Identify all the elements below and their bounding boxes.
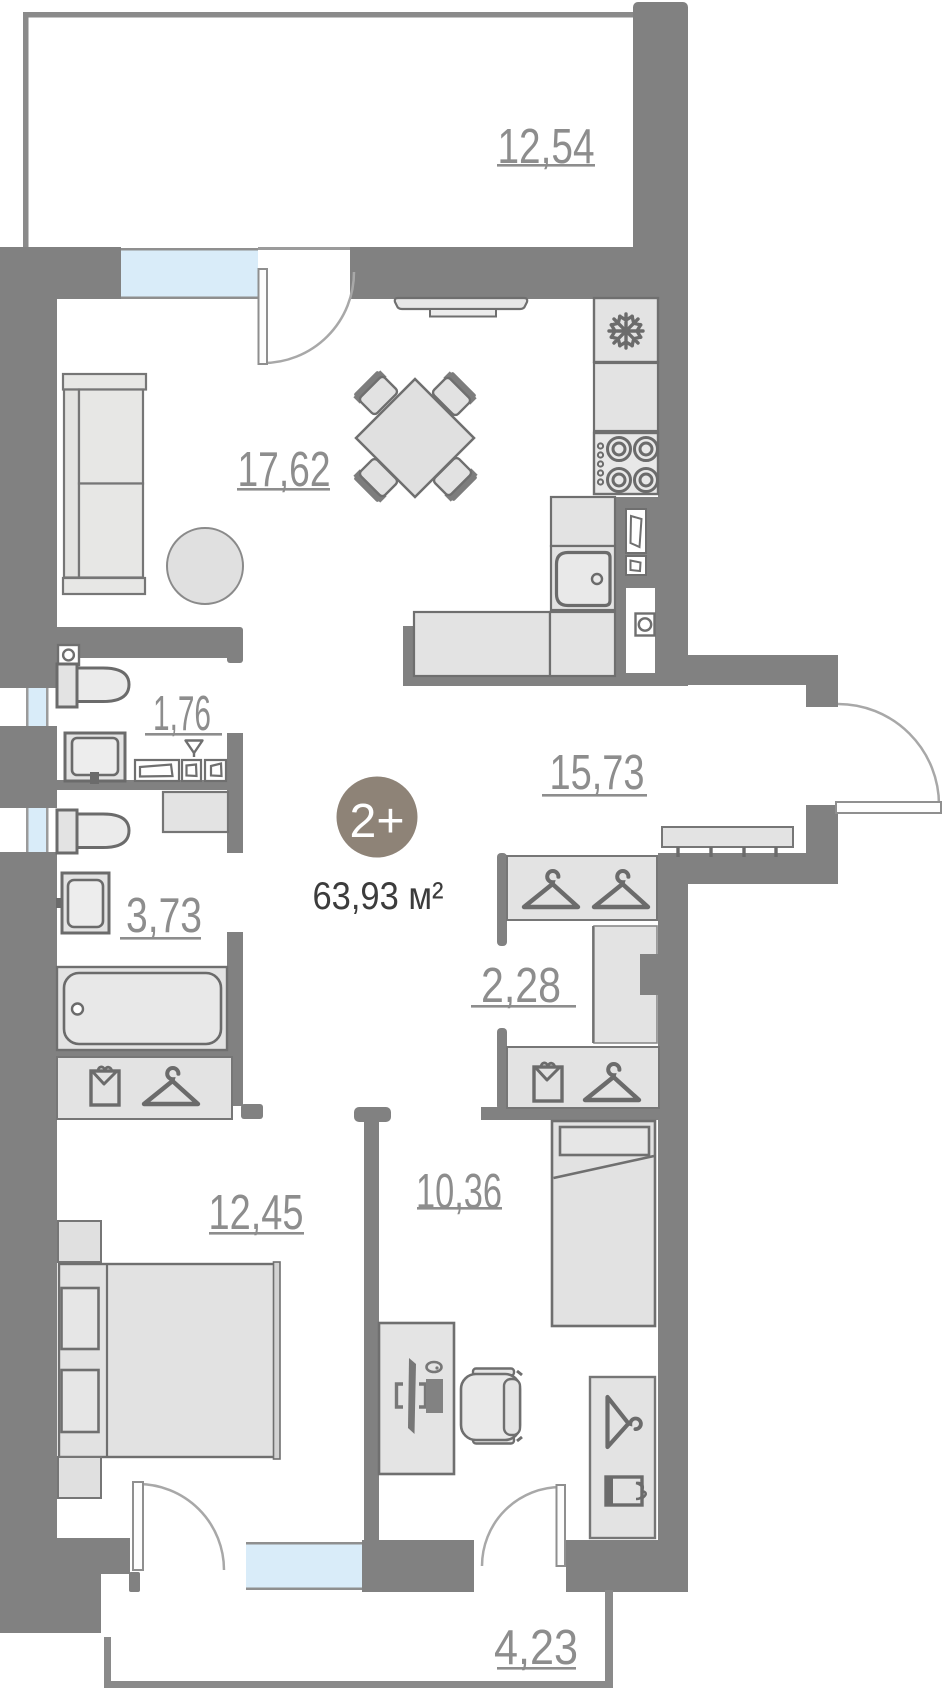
svg-text:63,93 м²: 63,93 м²	[313, 875, 444, 918]
svg-text:4,23: 4,23	[494, 1621, 578, 1675]
svg-text:15,73: 15,73	[550, 746, 645, 800]
svg-text:2+: 2+	[350, 795, 405, 848]
svg-text:2,28: 2,28	[481, 959, 561, 1013]
svg-text:3,73: 3,73	[126, 889, 202, 943]
svg-text:10,36: 10,36	[416, 1165, 502, 1219]
svg-text:1,76: 1,76	[153, 687, 211, 741]
svg-text:12,45: 12,45	[209, 1186, 304, 1240]
